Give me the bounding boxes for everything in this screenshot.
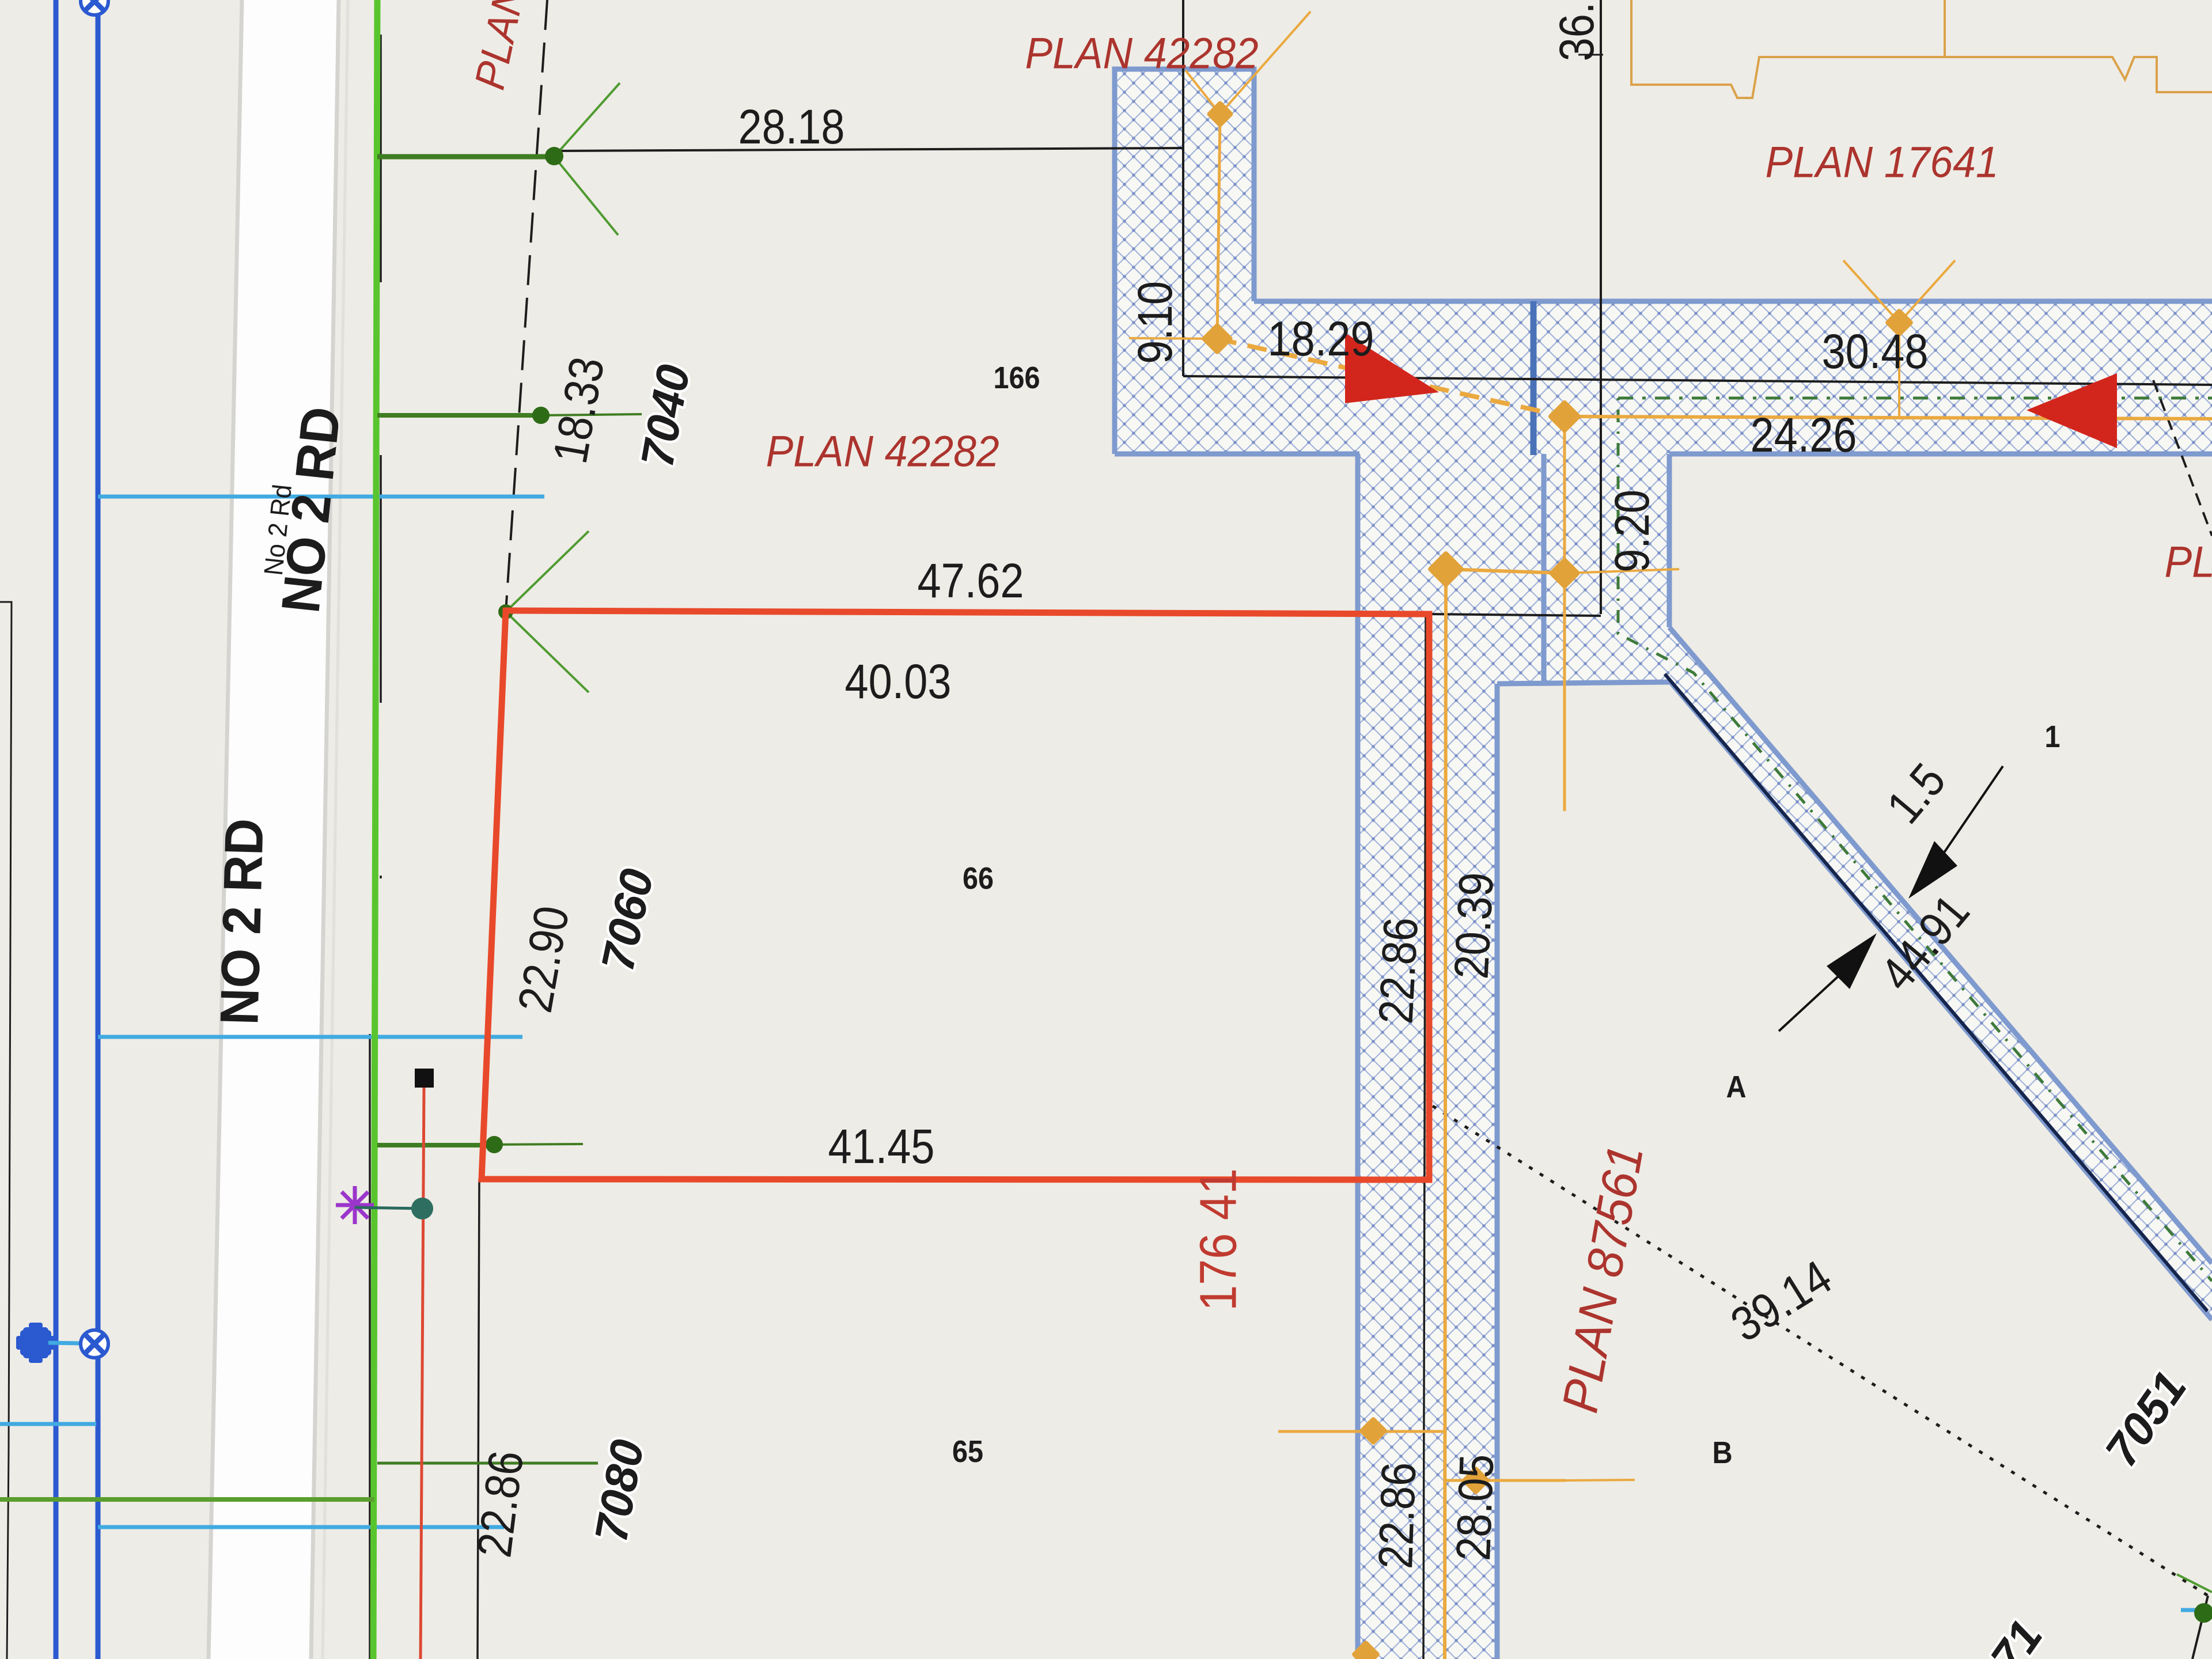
- svg-text:36.: 36.: [1550, 2, 1604, 62]
- svg-text:PLAN 17641: PLAN 17641: [1765, 137, 1998, 187]
- svg-text:166: 166: [993, 360, 1040, 395]
- svg-text:40.03: 40.03: [845, 654, 952, 709]
- svg-text:PLAN 42282: PLAN 42282: [766, 426, 999, 476]
- svg-text:1: 1: [2044, 719, 2060, 754]
- svg-text:66: 66: [963, 861, 994, 896]
- svg-text:22.86: 22.86: [1368, 916, 1428, 1025]
- svg-text:65: 65: [952, 1434, 983, 1469]
- svg-text:22.86: 22.86: [1368, 1461, 1426, 1570]
- svg-text:28.18: 28.18: [738, 100, 845, 154]
- svg-text:9.20: 9.20: [1605, 490, 1659, 573]
- svg-text:B: B: [1712, 1435, 1732, 1470]
- svg-text:9.10: 9.10: [1128, 281, 1182, 364]
- svg-text:NO 2 RD: NO 2 RD: [209, 817, 275, 1025]
- svg-text:PLAN 42282: PLAN 42282: [1025, 28, 1258, 78]
- svg-text:47.62: 47.62: [918, 554, 1024, 608]
- svg-text:18.29: 18.29: [1268, 312, 1374, 366]
- svg-text:A: A: [1726, 1069, 1746, 1104]
- svg-text:PLAN 87561: PLAN 87561: [2164, 537, 2212, 586]
- svg-text:20.39: 20.39: [1444, 871, 1503, 980]
- svg-text:176 41: 176 41: [1190, 1168, 1248, 1311]
- svg-text:28.05: 28.05: [1446, 1453, 1504, 1562]
- svg-text:30.48: 30.48: [1822, 324, 1929, 378]
- svg-text:24.26: 24.26: [1751, 408, 1857, 462]
- svg-text:41.45: 41.45: [828, 1119, 935, 1173]
